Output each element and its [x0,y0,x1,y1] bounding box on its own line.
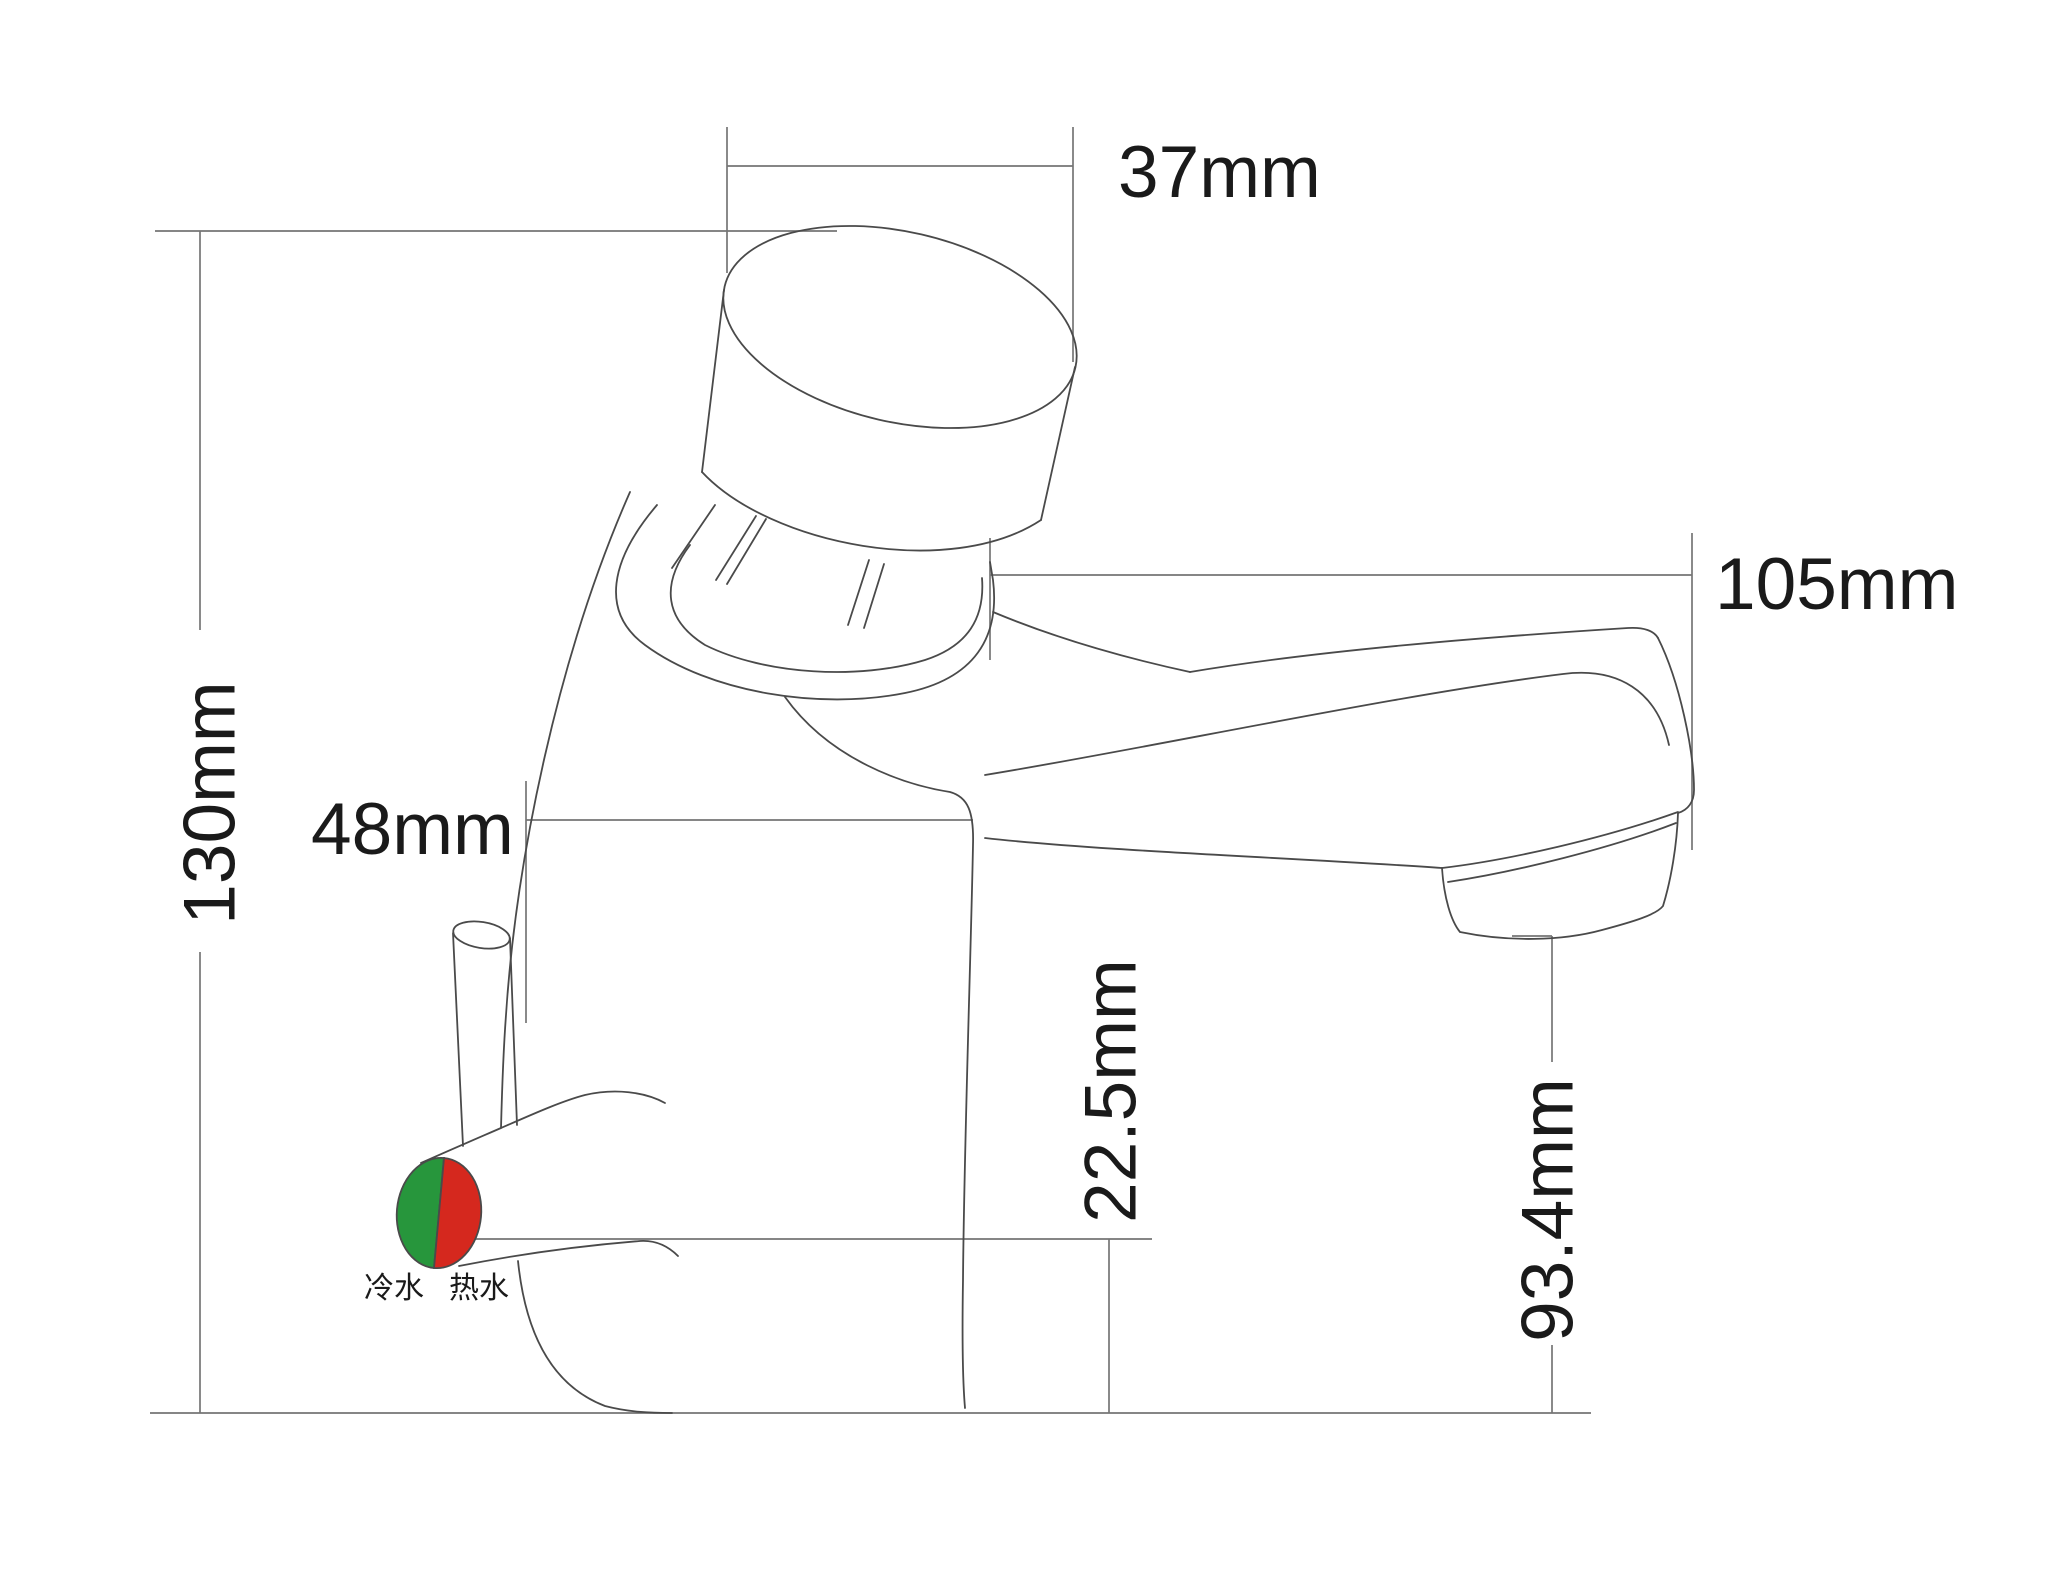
push-button-cap [702,194,1097,551]
body-front-edge [785,697,973,1408]
knob-top-edge [421,1092,665,1163]
body [501,492,973,1413]
dimension-label-button-width: 37mm [1118,136,1321,209]
aerator-separation-lower [1448,823,1676,882]
collar [616,505,994,699]
dimension-lines [150,127,1692,1413]
button-top-face [703,194,1097,460]
collar-inner-edge [671,545,983,672]
button-left-side [702,290,724,472]
spout-neck-curve [993,612,1190,672]
faucet-dimension-drawing: 37mm 105mm 130mm 48mm 22.5mm 93.4mm 冷水 热… [0,0,2067,1581]
spout [985,612,1694,939]
dimension-label-outlet-height: 93.4mm [1512,1078,1585,1342]
body-left-silhouette-upper [501,492,630,1128]
hot-water-label: 热水 [449,1274,509,1304]
rod-right-edge [510,938,517,1125]
rod-top-face [451,918,511,953]
body-left-silhouette-lower [518,1261,672,1413]
rod-left-edge [453,933,463,1146]
dimension-label-total-height: 130mm [174,681,247,924]
collar-slot-line-5 [864,564,884,628]
spout-front-crease [985,673,1669,775]
collar-slot-line-1 [672,505,715,568]
cold-water-label: 冷水 [364,1274,424,1304]
button-right-side [1041,367,1075,520]
handle-rod [451,918,517,1146]
spout-top-edge [1190,628,1658,672]
dimension-label-base-height: 22.5mm [1075,959,1148,1223]
collar-slot-line-4 [848,560,869,625]
dimension-label-handle-offset: 48mm [311,793,514,866]
aerator-outline [1442,813,1678,939]
spout-underside [985,838,1442,868]
faucet-outline [421,194,1694,1413]
dimension-label-spout-reach: 105mm [1715,548,1958,621]
temperature-indicator [397,1158,482,1268]
knob-bottom-edge [459,1241,678,1266]
